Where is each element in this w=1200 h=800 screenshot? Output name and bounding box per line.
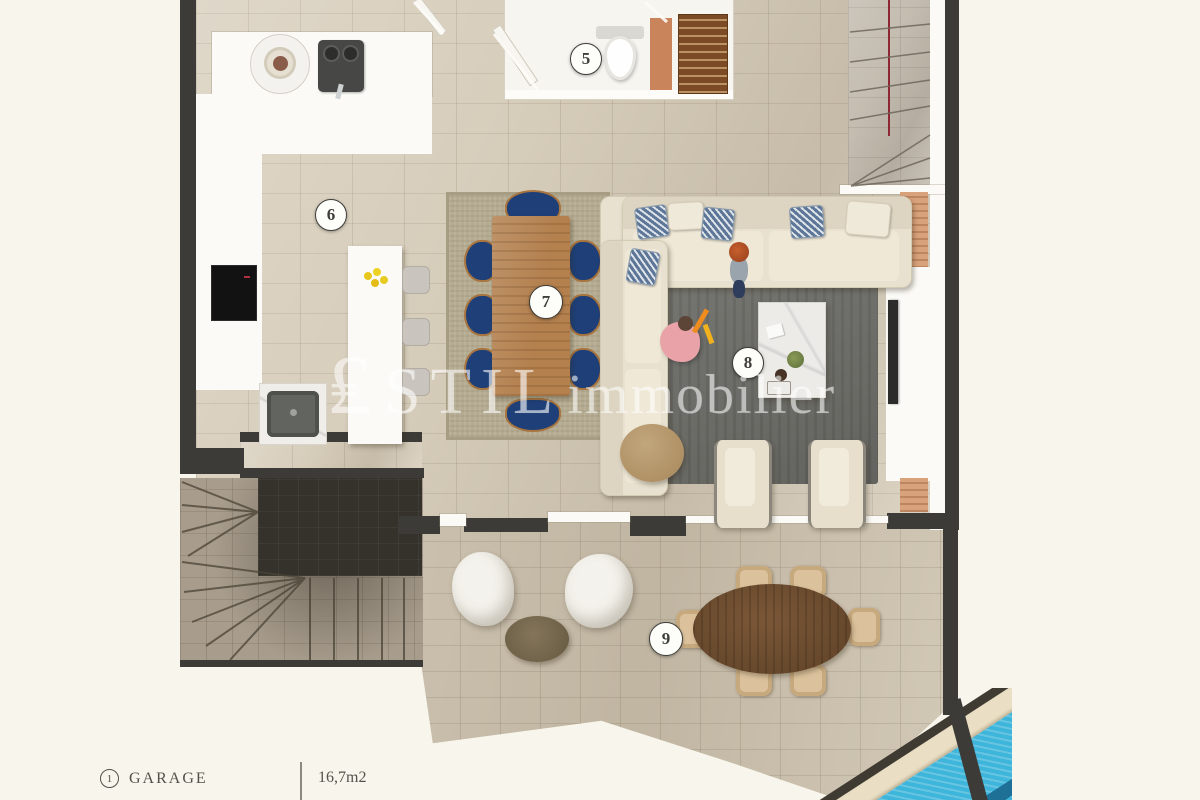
throw-pillow [634, 204, 670, 240]
dining-chair [568, 294, 602, 336]
terrace-chair [848, 608, 880, 646]
plant-pot [787, 351, 804, 368]
lemon [380, 276, 388, 284]
outer-wall-right [945, 0, 959, 530]
oven-indicator [244, 276, 250, 278]
child-legs [733, 280, 745, 298]
wall-south-seg1 [398, 516, 440, 534]
coffee-table-marble [758, 302, 826, 398]
room-marker-wc: 5 [570, 43, 602, 75]
throw-pillow [845, 200, 892, 238]
lemons-bowl [362, 268, 390, 292]
armchair-seat [725, 448, 755, 506]
island-stool [402, 318, 430, 346]
child-standing [724, 242, 754, 304]
dining-chair [568, 240, 602, 282]
lemon [364, 272, 372, 280]
media-shelf-lower [900, 478, 928, 512]
built-in-oven [212, 266, 256, 320]
stair-upper-landing [840, 185, 946, 194]
armchair-seat [819, 448, 849, 506]
burner-right [344, 47, 357, 60]
wc-wood-ledge [650, 18, 672, 90]
throw-pillow [789, 205, 825, 239]
legend-divider [300, 762, 302, 800]
terrace-oval-table [693, 584, 851, 674]
cooktop [318, 40, 364, 92]
faucet [290, 409, 297, 416]
kitchen-sink-round [250, 34, 310, 94]
paper-sheet [766, 323, 785, 339]
outer-wall-left-elbow [180, 448, 244, 474]
tv-screen [888, 300, 898, 404]
throw-pillow [625, 248, 660, 287]
terrace-pouf [452, 552, 514, 626]
burner-left [325, 47, 338, 60]
stair-vestibule-tiles [240, 442, 422, 470]
round-ottoman [505, 616, 569, 662]
room-marker-living: 8 [732, 347, 764, 379]
wc-slatted-radiator [678, 14, 728, 94]
door-sill-2 [548, 512, 630, 522]
sofa-seat-cushion [769, 231, 899, 281]
legend-row-garage: 1 GARAGE [100, 769, 208, 788]
tray [767, 381, 791, 395]
legend-room-label: GARAGE [129, 770, 208, 788]
door-sill-1 [440, 514, 466, 526]
child-head [678, 316, 693, 331]
kitchen-left-counter [196, 94, 262, 390]
lemon [373, 268, 381, 276]
legend-index-circle: 1 [100, 769, 119, 788]
floor-plan-render: 5 6 7 8 9 ₤ STIL immobilier 1 GARAGE 16,… [0, 0, 1200, 800]
outer-wall-terrace-right [943, 527, 958, 715]
room-marker-kitchen: 6 [315, 199, 347, 231]
child-head-hair [729, 242, 749, 262]
wall-south-seg2 [464, 518, 548, 532]
dining-chair [568, 348, 602, 390]
child-sitting-beanbag [660, 308, 716, 362]
side-table-round [620, 424, 684, 482]
bowl [273, 56, 288, 71]
throw-pillow [700, 206, 735, 241]
armchair [714, 440, 772, 528]
toy-yellow [703, 324, 715, 345]
room-marker-terrace: 9 [649, 622, 683, 656]
armchair [808, 440, 866, 528]
room-marker-dining: 7 [529, 285, 563, 319]
lemon [371, 279, 379, 287]
dark-bowl [775, 369, 787, 381]
throw-pillow [667, 201, 704, 231]
kitchen-sink-dark [267, 391, 319, 437]
legend-area-text: 16,7m2 [318, 769, 366, 787]
wall-south-seg3 [630, 516, 686, 536]
stair-bottom-wall [180, 660, 423, 667]
legend-area-value: 16,7m2 [318, 769, 366, 787]
island-stool [402, 266, 430, 294]
island-stool [402, 368, 430, 396]
dining-chair [505, 398, 561, 432]
stair-vestibule-wall-bottom [240, 468, 424, 478]
section-red-line [888, 0, 890, 136]
outer-wall-left [180, 0, 196, 472]
